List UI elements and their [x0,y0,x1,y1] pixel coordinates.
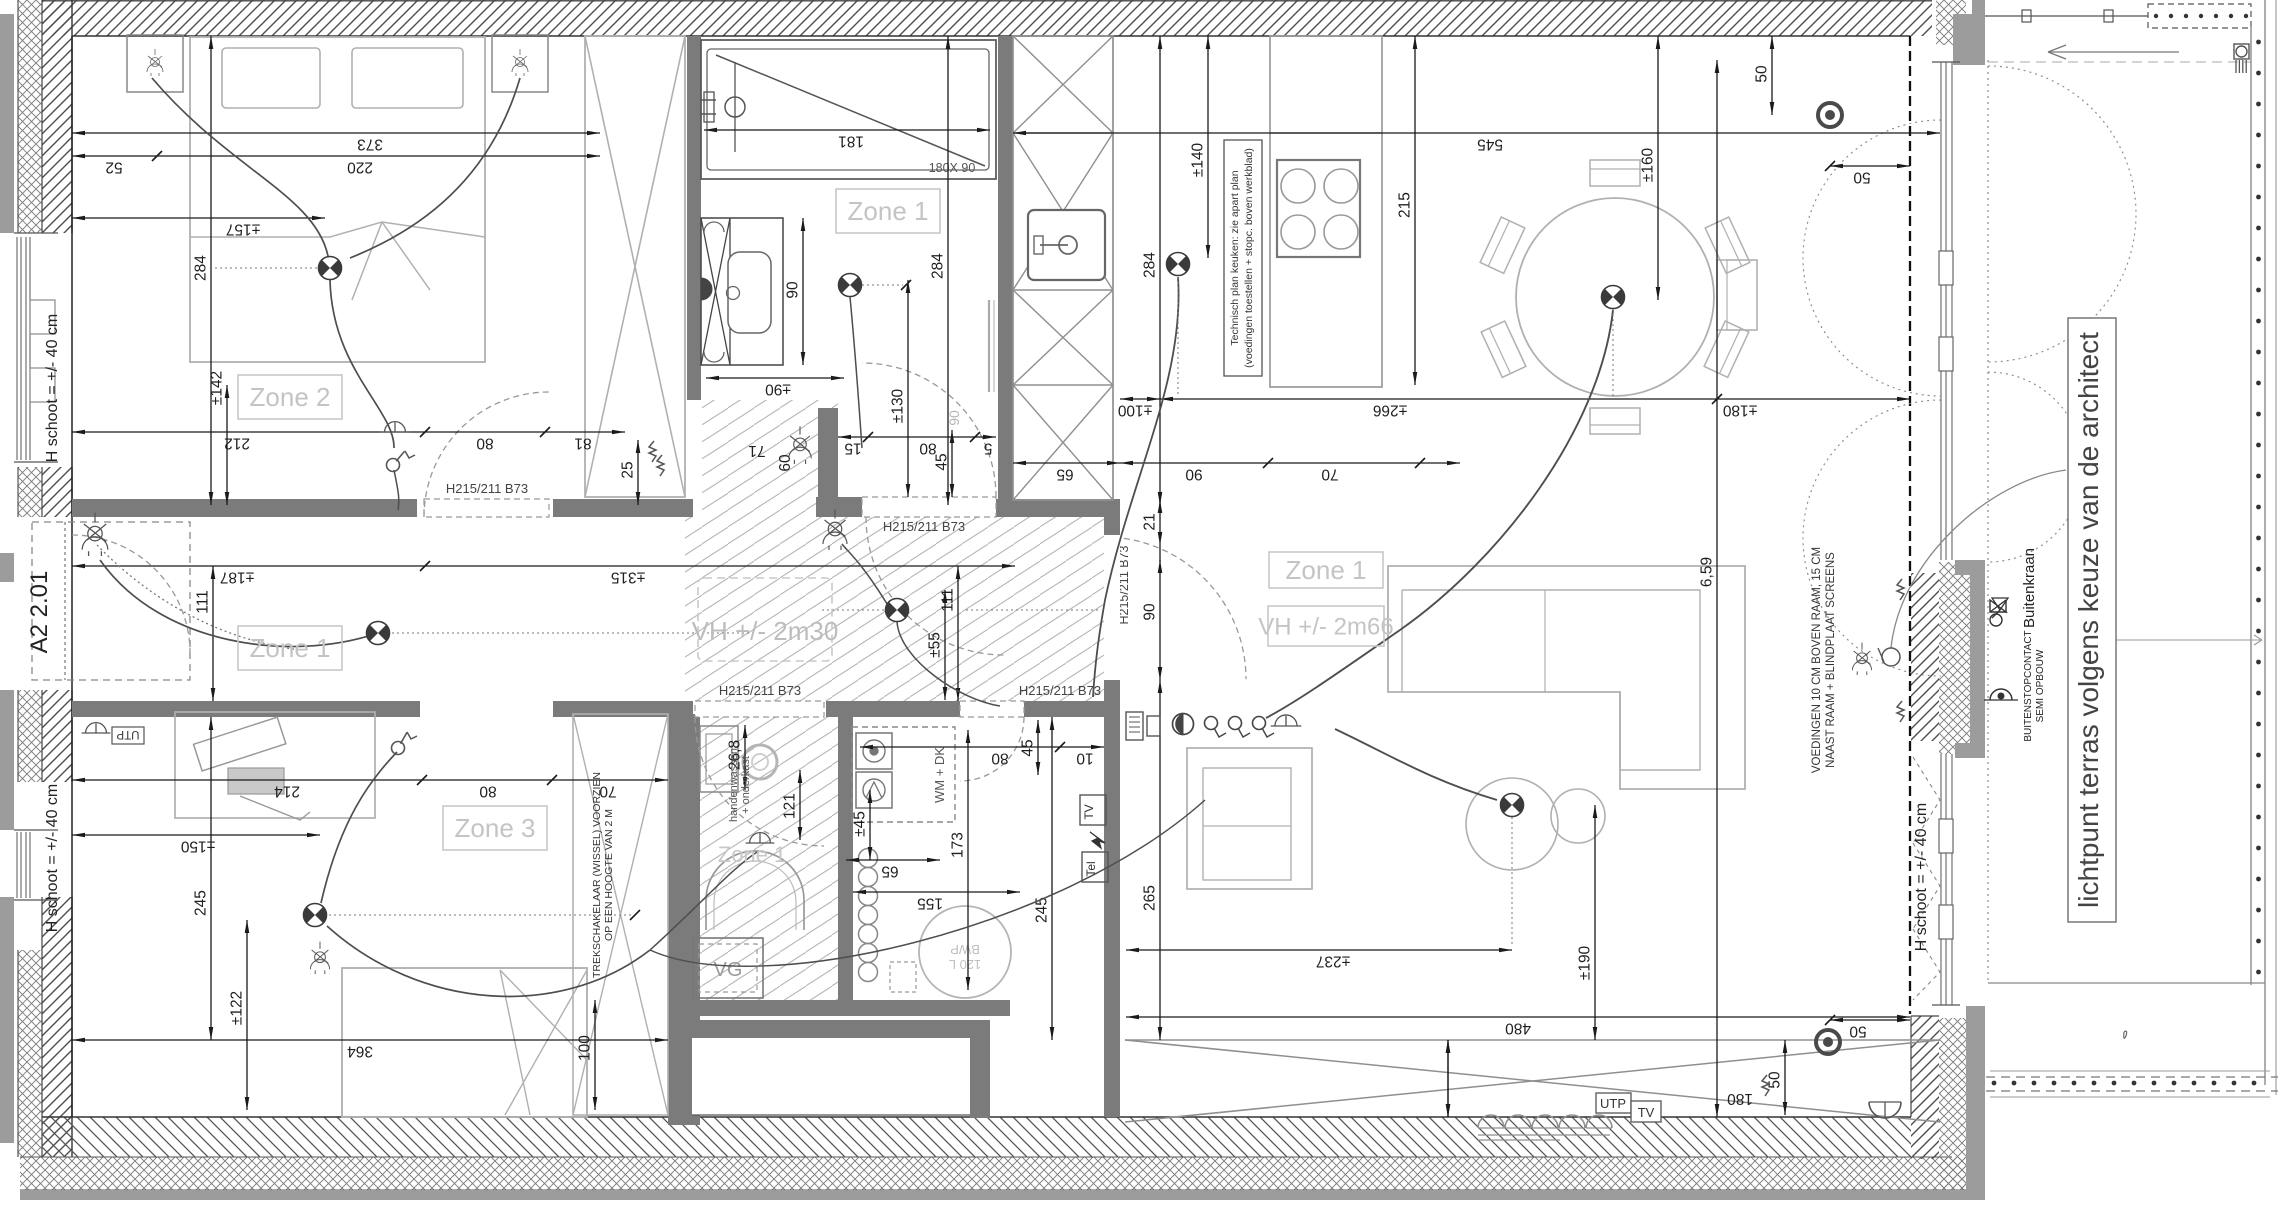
svg-text:H schoot = +/- 40 cm: H schoot = +/- 40 cm [1913,803,1930,952]
svg-text:TREKSCHAKELAAR (WISSEL) VOORZI: TREKSCHAKELAAR (WISSEL) VOORZIEN [591,772,603,978]
svg-text:Zone 1: Zone 1 [250,633,331,663]
svg-text:±160: ±160 [1640,147,1657,182]
svg-text:Zone 1: Zone 1 [1286,555,1367,585]
svg-text:173: 173 [950,832,967,858]
svg-text:60: 60 [777,454,794,472]
svg-text:±122: ±122 [229,991,246,1025]
svg-text:VH +/- 2m30: VH +/- 2m30 [692,616,839,646]
svg-text:70: 70 [1321,466,1339,483]
svg-text:212: 212 [224,435,250,452]
svg-text:VG: VG [714,959,743,981]
svg-text:lichtpunt terras volgens keuze: lichtpunt terras volgens keuze van de ar… [2073,332,2104,908]
svg-text:±187: ±187 [220,569,254,586]
svg-text:UTP: UTP [1600,1096,1626,1111]
svg-text:±55: ±55 [927,632,944,658]
svg-text:OP EEN HOOGTE VAN 2 M: OP EEN HOOGTE VAN 2 M [603,809,615,941]
svg-text:Zone 2: Zone 2 [250,382,331,412]
svg-text:284: 284 [930,253,947,279]
svg-text:545: 545 [1477,136,1503,153]
svg-text:90: 90 [1142,603,1159,621]
svg-text:Technisch plan keuken: zie apa: Technisch plan keuken: zie apart plan [1229,170,1241,345]
svg-text:±190: ±190 [1577,945,1594,980]
svg-text:TV: TV [1082,804,1096,819]
svg-text:52: 52 [105,159,122,176]
svg-text:±140: ±140 [1190,142,1207,177]
svg-text:TV: TV [1638,1105,1655,1120]
svg-text:81: 81 [574,435,591,452]
svg-text:245: 245 [193,890,210,916]
svg-text:45: 45 [934,453,951,470]
svg-text:50: 50 [1853,169,1871,186]
svg-text:50: 50 [1767,1071,1784,1089]
svg-text:180: 180 [1727,1090,1753,1107]
svg-text:±90: ±90 [765,381,791,398]
svg-text:373: 373 [357,136,383,153]
svg-text:65: 65 [1056,466,1073,483]
svg-text:±157: ±157 [226,221,260,238]
svg-text:111: 111 [940,588,957,612]
svg-text:90: 90 [1185,466,1203,483]
svg-text:H215/211 B73: H215/211 B73 [719,683,801,698]
svg-text:Buitenkraan: Buitenkraan [2021,548,2038,628]
svg-text:A2 2.01: A2 2.01 [26,571,53,654]
svg-text:NAAST RAAM + BLINDPLAAT SCREEN: NAAST RAAM + BLINDPLAAT SCREENS [1825,552,1837,768]
svg-text:215: 215 [1397,192,1414,218]
svg-text:100: 100 [577,1035,594,1061]
svg-text:111: 111 [195,590,212,614]
svg-text:364: 364 [347,1043,373,1060]
svg-text:214: 214 [274,783,300,800]
svg-text:H215/211 B73: H215/211 B73 [446,481,528,496]
svg-text:90: 90 [785,281,802,299]
svg-text:(voedingen toestellen + stopc.: (voedingen toestellen + stopc. boven wer… [1243,148,1255,368]
svg-text:SEMI OPBOUW: SEMI OPBOUW [2035,649,2046,722]
svg-text:Zone 3: Zone 3 [455,813,536,843]
svg-text:+ onderkast: + onderkast [740,756,752,814]
svg-text:180X 90: 180X 90 [929,161,976,175]
svg-text:5: 5 [984,440,993,457]
svg-text:Zone 1: Zone 1 [718,842,787,867]
svg-text:H schoot = +/- 40 cm: H schoot = +/- 40 cm [44,784,61,933]
svg-text:handenwassen: handenwassen [728,748,740,822]
svg-text:65: 65 [881,863,898,880]
svg-text:UTP: UTP [116,728,139,740]
svg-text:480: 480 [1505,1020,1531,1037]
svg-text:15: 15 [844,440,861,457]
svg-text:220: 220 [347,159,373,176]
svg-text:181: 181 [838,133,864,150]
svg-text:120 L: 120 L [949,957,982,972]
svg-text:21: 21 [1142,513,1159,530]
svg-text:±100: ±100 [1117,402,1152,419]
svg-text:80: 80 [476,435,494,452]
svg-text:±315: ±315 [611,569,645,586]
svg-text:±266: ±266 [1373,402,1407,419]
svg-text:71: 71 [748,442,765,459]
svg-text:±142: ±142 [209,371,226,405]
svg-text:±180: ±180 [1722,402,1757,419]
svg-text:80: 80 [479,783,497,800]
svg-text:±130: ±130 [890,388,907,423]
svg-text:±237: ±237 [1316,953,1350,970]
svg-text:H215/211 B73: H215/211 B73 [883,519,965,534]
svg-text:6,59: 6,59 [1699,557,1716,587]
svg-text:VOEDINGEN 10 CM BOVEN RAAM, 15: VOEDINGEN 10 CM BOVEN RAAM, 15 CM [1811,547,1823,773]
svg-text:H schoot = +/- 40 cm: H schoot = +/- 40 cm [44,314,61,463]
svg-text:BWP: BWP [950,942,980,957]
svg-text:80: 80 [991,750,1009,767]
svg-text:25: 25 [620,461,637,478]
svg-text:Zone 1: Zone 1 [848,196,929,226]
svg-text:284: 284 [1142,252,1159,278]
svg-text:284: 284 [193,255,210,281]
svg-text:155: 155 [917,895,943,912]
svg-text:50: 50 [1849,1023,1867,1040]
svg-text:BUITENSTOPCONTACT: BUITENSTOPCONTACT [2023,630,2034,741]
svg-text:±150: ±150 [180,838,215,855]
svg-text:121: 121 [782,793,799,819]
svg-text:10: 10 [1076,750,1094,767]
svg-text:265: 265 [1142,885,1159,911]
svg-text:50: 50 [1754,65,1771,83]
svg-text:±45: ±45 [852,811,869,837]
svg-text:VH +/- 2m66: VH +/- 2m66 [1258,613,1393,640]
svg-text:45: 45 [1020,739,1037,756]
svg-text:WM + DK: WM + DK [932,747,947,803]
svg-text:H215/211 B73: H215/211 B73 [1019,683,1101,698]
